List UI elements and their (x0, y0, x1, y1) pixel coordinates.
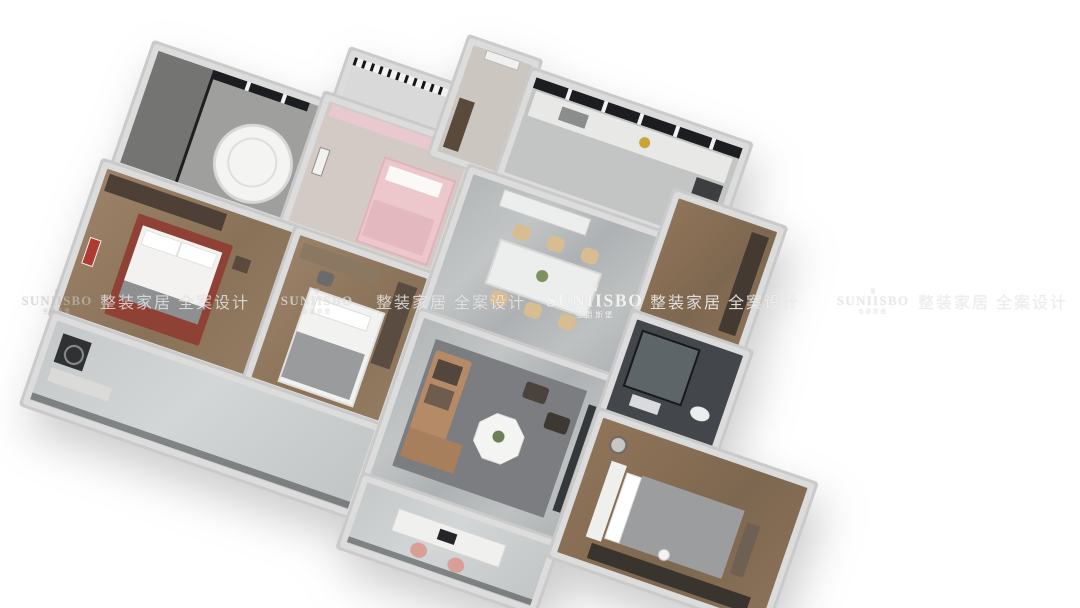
master-bed (104, 213, 233, 346)
dining-chair (545, 234, 566, 254)
study-desk (299, 243, 380, 284)
wall-art-frame (311, 147, 331, 177)
washer-door (61, 342, 86, 367)
sofa-cushion (432, 359, 463, 386)
laundry-counter (47, 367, 112, 401)
dining-chair (511, 223, 532, 243)
shower-zone (120, 51, 216, 182)
dining-chair (522, 301, 543, 321)
guest-bed-pillow (312, 298, 372, 332)
guest-bed-blanket (281, 331, 365, 400)
dining-chair (557, 312, 578, 332)
apartment-3d-floorplan (0, 0, 1077, 608)
washing-machine (54, 333, 92, 371)
floor-lamp (607, 434, 630, 457)
kids-bed-blanket (362, 199, 435, 256)
toilet (688, 404, 711, 424)
desk-chair (316, 269, 336, 287)
balcony-glass-edge (30, 392, 350, 508)
dining-chair (579, 246, 600, 266)
nightstand (232, 255, 252, 273)
bedside-art (81, 237, 101, 267)
kids-bed (355, 156, 456, 266)
hall-cabinet (718, 232, 769, 336)
guest-bed (277, 287, 385, 408)
sofa-cushion (424, 383, 455, 410)
bathroom-window (212, 70, 309, 111)
dining-chair (488, 289, 509, 309)
third-bedroom (557, 418, 807, 608)
kids-bed-pillow (385, 165, 443, 197)
entry-door (484, 50, 521, 71)
floorplan-render: ♛SUNIISBO圣爵斯堡整装家居 全案设计♛SUNIISBO圣爵斯堡整装家居 … (0, 0, 1080, 608)
